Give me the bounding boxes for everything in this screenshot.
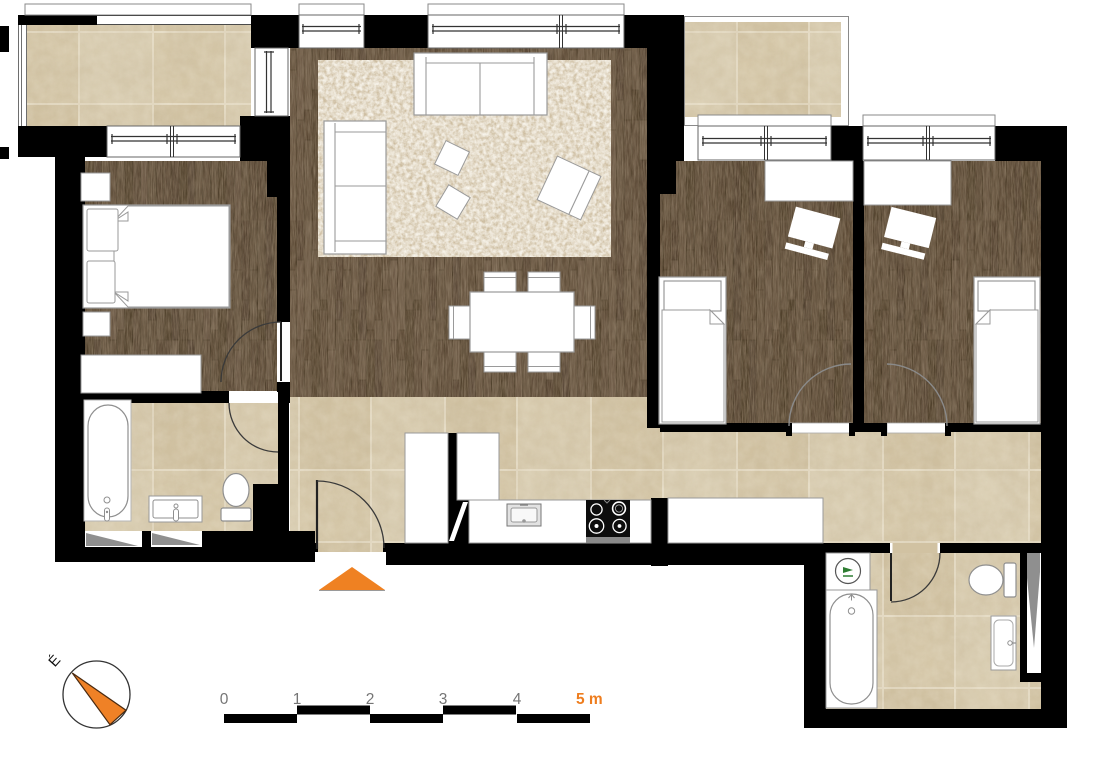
- svg-text:2: 2: [366, 691, 375, 708]
- svg-text:4: 4: [513, 691, 522, 708]
- svg-text:1: 1: [293, 691, 302, 708]
- svg-text:3: 3: [439, 691, 448, 708]
- svg-text:0: 0: [220, 691, 229, 708]
- svg-text:5 m: 5 m: [576, 691, 603, 708]
